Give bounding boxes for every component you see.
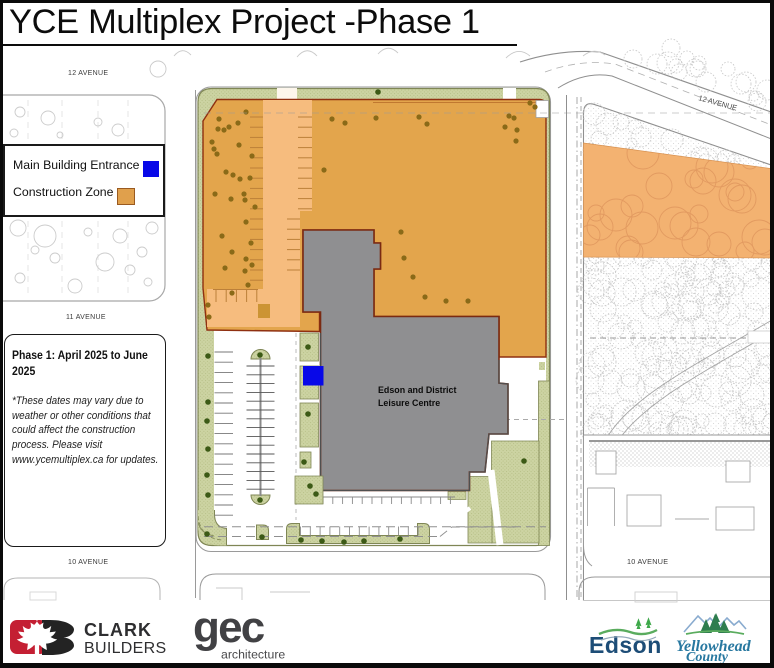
svg-text:County: County xyxy=(686,650,729,665)
svg-text:BUILDERS: BUILDERS xyxy=(84,640,166,657)
svg-text:architecture: architecture xyxy=(221,648,285,662)
svg-text:gec: gec xyxy=(193,603,265,652)
svg-text:Edson: Edson xyxy=(589,632,662,658)
svg-text:CLARK: CLARK xyxy=(84,620,152,640)
